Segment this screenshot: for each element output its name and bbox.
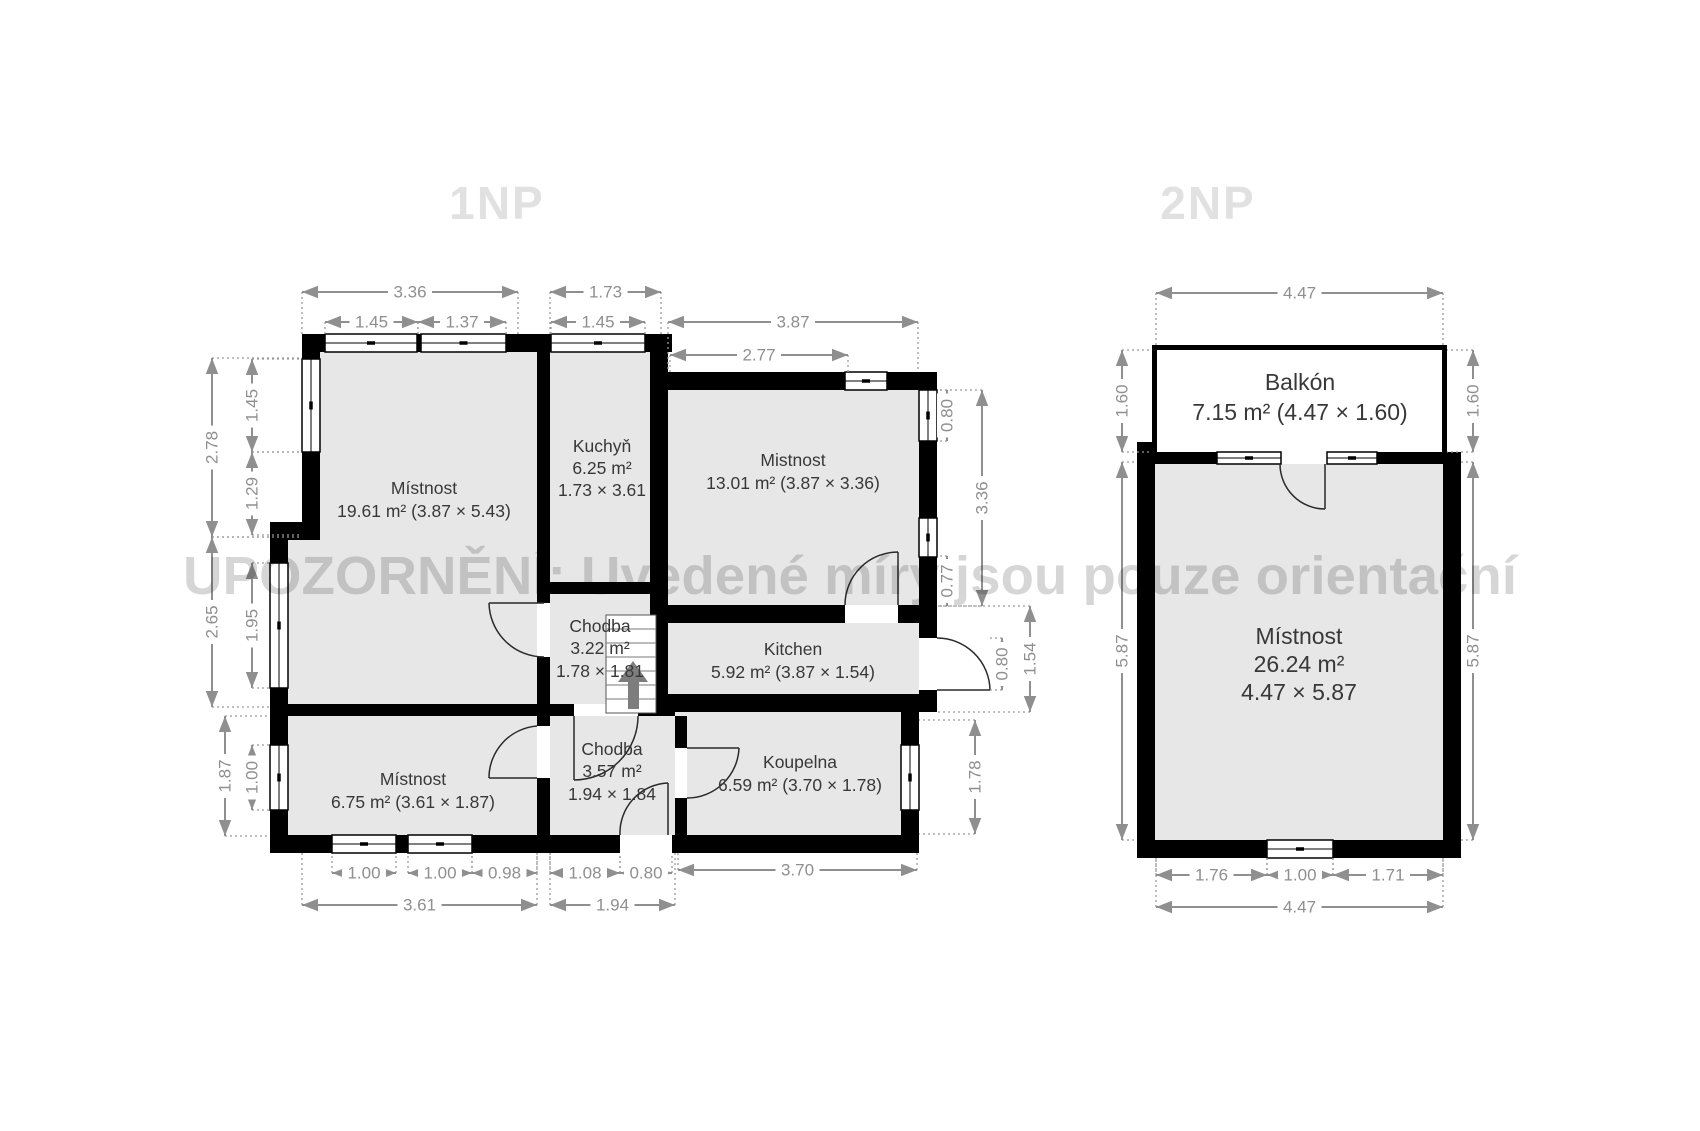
room-label: Místnost: [391, 478, 457, 498]
dimension: 1.94: [550, 853, 675, 915]
room-label: Místnost: [1256, 623, 1344, 649]
room-dims: 4.47 × 5.87: [1241, 679, 1357, 705]
room-label: Kitchen: [764, 639, 822, 659]
room-area: 19.61 m² (3.87 × 5.43): [337, 501, 511, 521]
room-dims: 1.73 × 3.61: [558, 480, 646, 500]
window-icon: [1217, 452, 1281, 464]
dimension: 1.60: [1112, 350, 1152, 452]
dimension: 3.87: [668, 312, 918, 372]
room-area: 6.59 m² (3.70 × 1.78): [718, 775, 882, 795]
dimension: 0.80: [990, 638, 1012, 690]
dimension: 4.47: [1156, 283, 1443, 345]
dimension-label: 1.95: [243, 609, 262, 642]
dimension: 3.36: [302, 282, 518, 334]
room-area: 13.01 m² (3.87 × 3.36): [706, 473, 880, 493]
wall: [650, 372, 937, 390]
wall: [1377, 452, 1443, 464]
window-icon: [325, 334, 417, 352]
dimension-label: 5.87: [1464, 634, 1483, 667]
window-icon: [845, 372, 887, 390]
window-icon: [1327, 452, 1377, 464]
room-area: 5.92 m² (3.87 × 1.54): [711, 662, 875, 682]
room-label: Místnost: [380, 769, 446, 789]
dimension: 1.45: [242, 359, 302, 452]
window-icon: [551, 334, 645, 352]
room-label: Chodba: [581, 739, 643, 759]
dimension-label: 3.61: [403, 896, 436, 915]
room-label: Chodba: [569, 616, 631, 636]
dimension-label: 1.73: [589, 283, 622, 302]
dimension: 1.54: [937, 606, 1040, 712]
dimension-label: 1.71: [1371, 866, 1404, 885]
dimension: 1.00: [1267, 858, 1333, 885]
room-area: 26.24 m²: [1254, 651, 1345, 677]
wall: [656, 694, 919, 712]
door-opening: [919, 638, 937, 690]
dimension-label: 1.76: [1195, 866, 1228, 885]
wall: [1443, 452, 1461, 858]
room-label: Koupelna: [763, 752, 837, 772]
room-floor: [320, 352, 650, 712]
wall: [1152, 345, 1157, 452]
window-icon: [332, 835, 396, 853]
dimension-label: 4.47: [1283, 284, 1316, 303]
floor-title-2np: 2NP: [1160, 177, 1255, 229]
room-dims: 1.78 × 1.81: [556, 661, 644, 681]
dimension-label: 1.00: [1283, 866, 1316, 885]
dimension: 2.77: [670, 345, 848, 372]
wall: [288, 704, 575, 716]
room-area: 6.75 m² (3.61 × 1.87): [331, 792, 495, 812]
dimension-label: 1.45: [243, 389, 262, 422]
dimension-label: 3.87: [776, 313, 809, 332]
room-label: Kuchyň: [573, 436, 631, 456]
room-area: 3.22 m²: [570, 638, 629, 658]
dimension: 3.70: [678, 853, 917, 880]
dimension-label: 2.65: [203, 605, 222, 638]
dimension-label: 1.00: [347, 864, 380, 883]
dimension: 1.00: [242, 745, 270, 810]
dimension: 1.00: [332, 853, 396, 883]
dimension-label: 1.78: [966, 760, 985, 793]
floor-title-1np: 1NP: [449, 177, 544, 229]
dimension-label: 1.60: [1113, 384, 1132, 417]
dimension: 0.98: [472, 853, 537, 883]
dimension-label: 1.45: [581, 313, 614, 332]
floor-plans-image: 1NP 2NP Místnost 19.61 m² (3.87 × 5.43) …: [0, 0, 1700, 1131]
dimension: 1.37: [418, 312, 506, 334]
wall: [1442, 345, 1447, 452]
dimension: 1.60: [1447, 350, 1483, 452]
dimension-label: 2.77: [742, 346, 775, 365]
door-opening: [537, 726, 550, 778]
room-label: Balkón: [1265, 369, 1335, 395]
wall: [1137, 442, 1155, 858]
door-opening: [1281, 452, 1325, 464]
dimension-label: 1.00: [423, 864, 456, 883]
dimension: 3.61: [302, 853, 537, 915]
window-icon: [270, 745, 288, 810]
window-icon: [919, 390, 937, 441]
window-icon: [302, 359, 320, 452]
room-area: 3.57 m²: [582, 761, 641, 781]
window-icon: [421, 334, 506, 352]
dimension-label: 3.70: [781, 861, 814, 880]
room-area: 7.15 m² (4.47 × 1.60): [1192, 399, 1407, 425]
watermark-text: UPOZORNĚNÍ: Uvedené míry jsou pouze orie…: [183, 545, 1519, 606]
room-label: Mistnost: [760, 450, 825, 470]
dimension: 5.87: [1461, 462, 1483, 840]
dimension: 1.00: [408, 853, 472, 883]
wall: [1155, 452, 1217, 464]
floor-plan-page: 1NP 2NP Místnost 19.61 m² (3.87 × 5.43) …: [0, 0, 1700, 1131]
dimension: 0.80: [620, 853, 672, 883]
dimension-label: 1.45: [355, 313, 388, 332]
wall: [1152, 345, 1447, 350]
door-arc-icon: [937, 638, 990, 690]
dimension-label: 1.37: [445, 313, 478, 332]
door-opening: [675, 748, 687, 798]
dimension-label: 1.08: [568, 864, 601, 883]
door-opening: [845, 605, 898, 623]
dimension-label: 1.54: [1021, 642, 1040, 675]
dimension: 5.87: [1112, 462, 1137, 840]
dimension: 0.80: [937, 390, 957, 441]
dimension: 1.71: [1333, 858, 1443, 885]
dimension-label: 1.60: [1464, 384, 1483, 417]
dimension: 1.45: [325, 312, 418, 334]
dimension-label: 0.80: [938, 399, 957, 432]
dimension-label: 5.87: [1113, 634, 1132, 667]
dimension-label: 3.36: [393, 283, 426, 302]
dimension-label: 1.94: [596, 896, 629, 915]
room-area: 6.25 m²: [572, 458, 631, 478]
dimension-label: 4.47: [1283, 898, 1316, 917]
room-dims: 1.94 × 1.84: [568, 784, 656, 804]
dimension-label: 1.87: [216, 759, 235, 792]
dimension-label: 3.36: [973, 481, 992, 514]
dimension-label: 0.80: [629, 864, 662, 883]
dimension-label: 0.80: [993, 647, 1012, 680]
dimension: 1.78: [919, 720, 985, 834]
door-opening: [537, 603, 550, 657]
dimension: 1.76: [1156, 858, 1267, 885]
dimension: 1.45: [551, 312, 645, 334]
window-icon: [901, 745, 919, 810]
door-opening: [620, 835, 672, 853]
dimension: 1.08: [550, 853, 620, 883]
window-icon: [408, 835, 472, 853]
dimension-label: 1.29: [243, 477, 262, 510]
dimension-label: 0.98: [488, 864, 521, 883]
dimension-label: 2.78: [203, 431, 222, 464]
window-icon: [1267, 840, 1333, 858]
dimension-label: 1.00: [243, 761, 262, 794]
